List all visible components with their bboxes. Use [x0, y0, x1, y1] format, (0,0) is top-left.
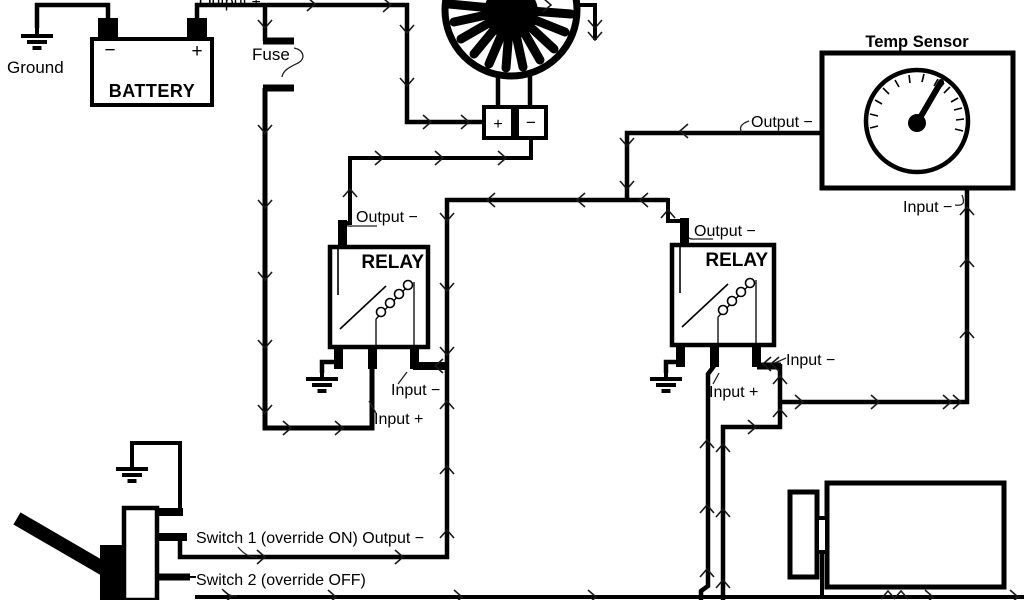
ground-symbol-battery [21, 20, 53, 48]
wiring-diagram: − + BATTERY Output + Ground Fuse + − [0, 0, 1024, 600]
temp-sensor: Temp Sensor [822, 33, 1013, 188]
wire-relay2-output [668, 198, 685, 221]
battery: − + BATTERY [92, 18, 212, 105]
battery-title: BATTERY [109, 81, 196, 101]
toggle-switch [23, 508, 157, 600]
gauge-hub [908, 114, 926, 132]
relay1-input-neg-label: Input − [391, 382, 440, 399]
relay1-input-pos-label: Input + [374, 411, 423, 428]
wire-relay2-input-pos [701, 366, 714, 600]
relay2-title: RELAY [705, 250, 768, 271]
battery-neg-post [98, 18, 118, 40]
battery-output-label: Output + [199, 0, 261, 11]
switch-mount [100, 545, 124, 600]
temp-sensor-output-label: Output − [751, 114, 813, 131]
relay1-output-label: Output − [356, 209, 418, 226]
wire-temp-output [627, 133, 822, 200]
switch2-label: Switch 2 (override OFF) [196, 572, 366, 589]
relay2-input-pos-label: Input + [709, 384, 758, 401]
temp-sensor-input-label: Input − [903, 199, 952, 216]
relay1-title: RELAY [361, 252, 424, 273]
relay2-input-neg-label: Input − [786, 352, 835, 369]
fan-neg-sign: − [526, 113, 536, 132]
connector-tab [817, 518, 827, 552]
switch-handle [23, 522, 104, 569]
wire-battery-positive [197, 5, 484, 122]
battery-neg-sign: − [104, 40, 115, 61]
wire-switch-ground [132, 443, 180, 512]
switch1-label: Switch 1 (override ON) Output − [196, 530, 424, 547]
wire-battery-negative [37, 5, 108, 28]
relay2-output-label: Output − [694, 223, 756, 240]
temp-sensor-title: Temp Sensor [865, 33, 969, 51]
diagram-canvas: − + BATTERY Output + Ground Fuse + − [0, 0, 1024, 600]
battery-pos-post [187, 18, 207, 40]
battery-pos-sign: + [191, 41, 202, 62]
wire-to-temp-input [780, 188, 967, 402]
relay-2: RELAY [672, 218, 774, 367]
ground-symbol-relay1 [306, 363, 338, 391]
fan-pos-sign: + [493, 116, 502, 133]
device-box [827, 483, 1004, 587]
fuse-label: Fuse [252, 45, 290, 64]
ground-symbol-switch [116, 453, 148, 481]
ground-label: Ground [7, 58, 64, 77]
ground-symbol-relay2 [650, 363, 682, 391]
connector-box [790, 492, 817, 577]
switch-body [124, 508, 157, 600]
relay-1: RELAY [330, 220, 428, 369]
